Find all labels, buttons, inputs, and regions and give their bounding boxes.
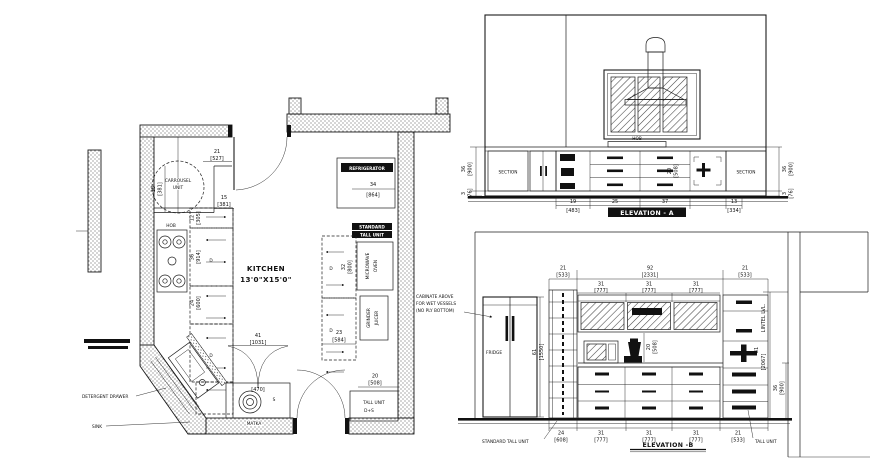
tall-unit-plan: TALL UNIT D+S [350,391,398,421]
door-jamb [293,418,297,434]
sink-label: SINK [92,424,102,430]
tall-unit-label: TALL UNIT [754,439,777,445]
room-size: 13'0"X15'0" [240,275,292,284]
section-cabinet-right: SECTION [726,151,766,191]
standard-tall-unit-elevation [549,290,577,418]
dim: 24 [190,300,196,306]
elevation-a-dimensions: 36 [900] 3 [76] 36 [900] 3 [76] 19 [483]… [461,147,795,214]
section-label: SECTION [499,170,518,176]
dim: 23 [336,330,342,336]
floor-line [458,418,792,421]
door-label: D [329,266,333,272]
dim: 31 [598,431,604,437]
dim: [800] [348,260,354,273]
dim: 20 [372,374,378,380]
elevation-a-title-text: ELEVATION - A [620,210,674,217]
right-counter-run: D D [322,236,356,372]
dim: [334] [727,208,740,214]
cabinet-note: (NO PLY BOTTOM) [416,308,455,314]
dim: [470] [251,387,264,393]
room-title: KITCHEN [247,264,285,273]
service-door-swing [297,370,345,418]
dim: [305] [196,211,202,224]
dim: 34 [370,182,376,188]
dim: 24 [558,431,564,437]
dim: [1550] [539,344,545,361]
cabinet-note: FOR WET VESSELS [416,301,456,307]
tall-doors [530,151,556,191]
dim: 13 [731,199,737,205]
dim: [900] [780,381,786,394]
dim: 3 [461,192,467,195]
grinder-label: JUICER [374,311,380,326]
dim: [508] [368,381,381,387]
dim: 36 [461,166,467,172]
dim: [76] [789,188,795,198]
dim: 37 [662,199,668,205]
cad-canvas: CARROUSEL UNIT D D [0,0,870,473]
grinder-juicer-plan: GRINDER JUICER [360,296,388,340]
door-jamb [345,418,349,434]
dim: 31 [646,431,652,437]
dim: [777] [594,288,607,294]
dim: [527] [210,156,223,162]
refrigerator-plan: REFRIGERATOR [337,158,395,208]
hob-label: HOB [166,223,176,229]
elevation-b-title-text: ELEVATION -B [642,442,693,449]
dim: 21 [735,431,741,437]
dim: [508] [674,164,680,177]
dim: [2331] [642,273,659,279]
dim: 32 [341,264,347,270]
hob-plan: HOB [157,223,187,292]
dim: [584] [332,338,345,344]
door-jamb [228,125,232,137]
dim: 21 [560,266,566,272]
dim: 36 [782,166,788,172]
section-cabinet-left: SECTION [488,151,528,191]
dim: 3 [782,192,788,195]
wall-break-symbol [84,339,130,343]
dim: 41 [255,333,261,339]
mixer-grinder [624,339,642,363]
dim: [381] [158,182,164,195]
window [604,70,700,139]
std-tall-label: STANDARD [359,225,385,230]
tall-unit-label: TALL UNIT [362,400,385,406]
standard-tall-unit-label: STANDARD TALL UNIT [482,439,529,445]
dim: [533] [556,273,569,279]
kitchen-floor-plan: CARROUSEL UNIT D D [76,98,450,434]
microwave-label: MICROWAVE [365,252,371,279]
dim: 15 [151,186,157,192]
refrigerator-label: REFRIGERATOR [349,166,386,171]
elevation-a-title: ELEVATION - A [608,208,686,218]
dim: [914] [196,250,202,263]
section-label: SECTION [737,170,756,176]
dim: [508] [653,340,659,353]
microwave-label: OVEN [373,260,379,272]
dim: [777] [689,288,702,294]
dim: [76] [468,188,474,198]
fridge-label: FRIDGE [486,350,502,356]
dim: [864] [366,193,379,199]
dim: [483] [566,208,579,214]
elevation-b: FRIDGE [416,232,870,457]
dim: 31 [693,431,699,437]
base-cabinets-b [578,363,723,418]
door-label: D [329,328,333,334]
dim: 61 [532,349,538,355]
dim: 31 [646,282,652,288]
base-cabinets [556,151,726,191]
standard-tall-unit-plan: STANDARD TALL UNIT [352,223,392,238]
dim: [600] [196,296,202,309]
dim: 21 [742,266,748,272]
matka-label: MATKA [247,421,262,427]
dim: 36 [190,254,196,260]
detergent-drawer-label: DETERGENT DRAWER [82,394,128,400]
microwave-plan: MICROWAVE OVEN [357,242,393,290]
door-label: D [209,258,213,264]
cad-drawing-sheet: CARROUSEL UNIT D D [0,0,870,473]
floor-line [468,196,788,199]
grinder-label: GRINDER [366,308,372,328]
dim: [777] [594,438,607,444]
dim: [2067] [761,354,767,371]
lintel-level-label: LINTEL LVL. [761,303,767,332]
overhead-cabinets [578,295,720,332]
dim: [381] [217,202,230,208]
door-jamb [287,125,291,137]
dim: [777] [642,288,655,294]
dim: 31 [598,282,604,288]
dim: 21 [214,149,220,155]
dim: [533] [738,273,751,279]
dim: [533] [731,438,744,444]
door-label: D [209,353,213,359]
dim: [900] [468,162,474,175]
tall-unit-label: D+S [364,408,374,414]
wall-break-symbol [88,346,128,349]
dim: 12 [190,215,196,221]
s-label: S [273,397,276,403]
dim: 92 [647,266,653,272]
dim: 81 [754,347,760,353]
dim: 19 [570,199,576,205]
dim: 31 [693,282,699,288]
dim: [1031] [250,340,267,346]
dim: [608] [554,438,567,444]
carrousel-label: CARROUSEL [165,178,192,184]
carrousel-label: UNIT [173,185,184,191]
dim: 36 [773,385,779,391]
dim: 20 [667,168,673,174]
hob-elevation: HOB [608,136,666,147]
dim: 25 [612,199,618,205]
fridge-elevation: FRIDGE [483,297,537,417]
entry-door-swing [234,137,287,190]
cabinet-note: CABINATE ABOVE [416,294,454,300]
dim: 15 [221,195,227,201]
elevation-a: SECTION [461,15,795,217]
dim: [900] [789,162,795,175]
std-tall-label: TALL UNIT [360,233,384,238]
dim: 20 [646,344,652,350]
microwave-elevation [584,341,618,363]
